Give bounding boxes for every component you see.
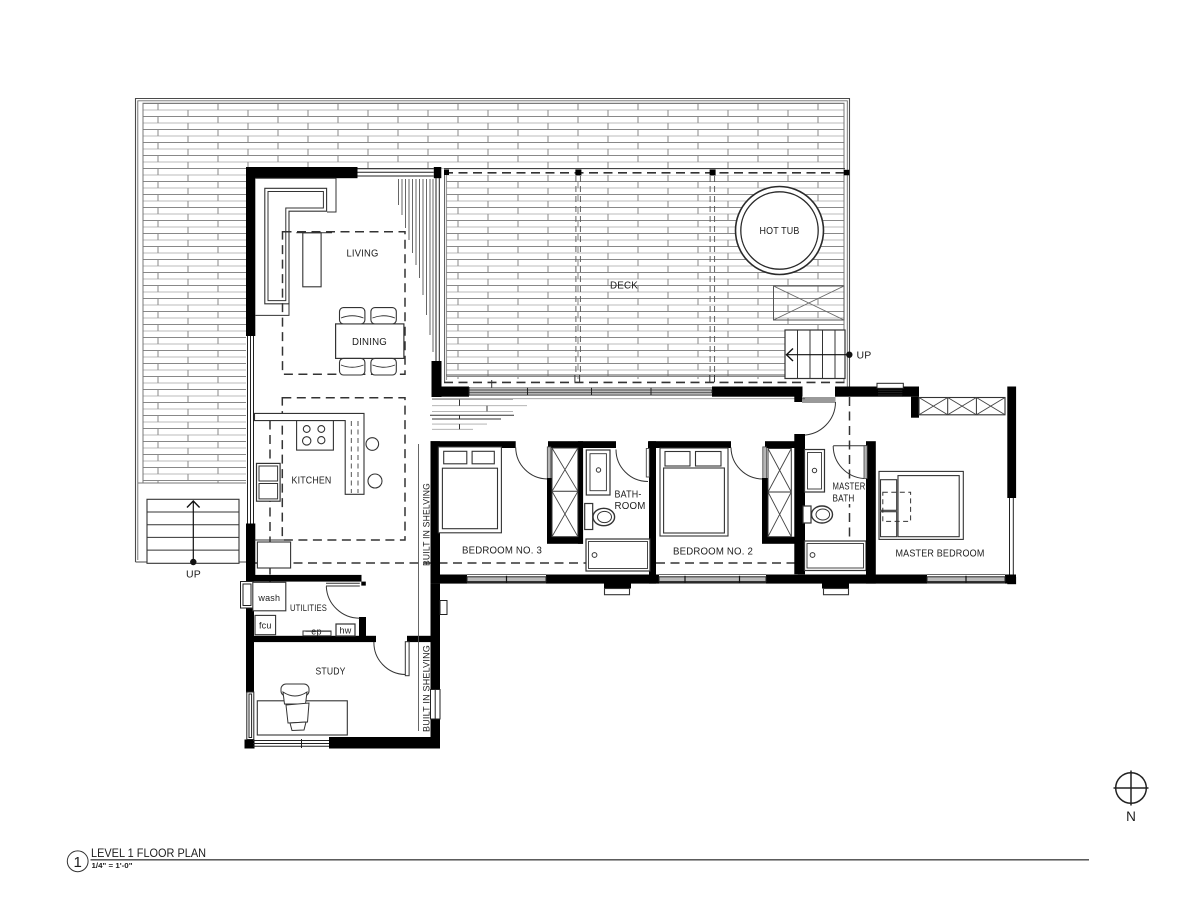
svg-text:LIVING: LIVING [347,248,379,260]
svg-text:BATH: BATH [833,494,855,505]
svg-text:KITCHEN: KITCHEN [292,474,332,486]
svg-text:BEDROOM NO. 2: BEDROOM NO. 2 [673,546,753,558]
svg-text:BUILT IN SHELVING: BUILT IN SHELVING [422,645,432,732]
svg-text:HOT TUB: HOT TUB [760,225,800,237]
svg-text:hw: hw [340,626,352,636]
svg-text:N: N [1126,809,1136,824]
svg-text:STUDY: STUDY [316,666,346,678]
svg-text:wash: wash [257,593,280,603]
svg-text:UTILITIES: UTILITIES [290,603,327,614]
svg-text:BEDROOM NO. 3: BEDROOM NO. 3 [462,545,542,557]
svg-text:BUILT IN SHELVING: BUILT IN SHELVING [422,483,432,566]
svg-text:UP: UP [857,350,872,362]
svg-text:ROOM: ROOM [615,501,646,512]
svg-text:DECK: DECK [610,280,638,292]
svg-text:DINING: DINING [352,336,387,348]
svg-text:1/4" = 1'-0": 1/4" = 1'-0" [92,861,133,870]
svg-text:fcu: fcu [259,621,272,631]
svg-text:BATH-: BATH- [615,490,642,501]
svg-text:1: 1 [74,854,82,871]
svg-text:MASTER BEDROOM: MASTER BEDROOM [896,548,985,560]
svg-text:UP: UP [186,569,201,581]
svg-text:LEVEL 1 FLOOR PLAN: LEVEL 1 FLOOR PLAN [91,846,206,860]
svg-text:MASTER: MASTER [833,482,866,493]
